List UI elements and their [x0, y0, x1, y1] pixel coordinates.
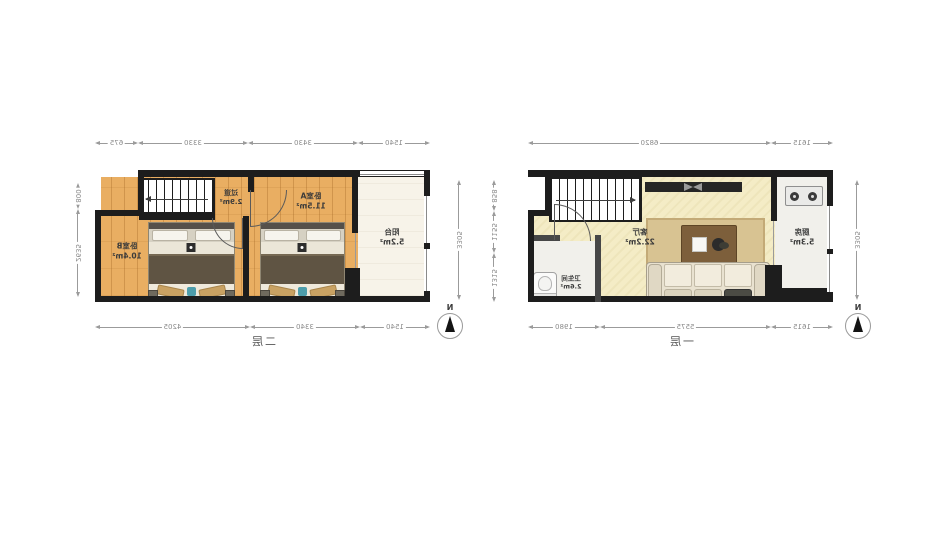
dim-top: 3430 — [248, 138, 358, 148]
plant-icon — [713, 238, 726, 251]
kitchen-sliding-door — [773, 221, 774, 265]
dim-left: 3305 — [851, 180, 863, 300]
stove-icon — [785, 186, 823, 206]
room-label-hallway: 过道 2.9m² — [220, 189, 243, 207]
room-area: 2.6m² — [560, 283, 581, 291]
room-label-bathroom: 卫生间 2.6m² — [560, 275, 581, 292]
door-leaf — [554, 204, 555, 240]
door-leaf — [242, 218, 243, 248]
wall — [528, 210, 534, 302]
wall — [140, 212, 215, 218]
bed-duvet — [261, 242, 344, 254]
compass-n-label: N — [447, 303, 454, 312]
wall — [771, 177, 777, 221]
bed-pillows — [261, 229, 344, 242]
balcony-door — [355, 233, 356, 268]
dim-top: 6820 — [528, 138, 771, 148]
window — [827, 206, 833, 249]
stair-direction-arrow — [556, 200, 635, 201]
dim-top: 3330 — [138, 138, 248, 148]
compass-dial — [437, 313, 463, 339]
dim-top: 1615 — [771, 138, 833, 148]
dim-right: 1155 — [488, 211, 500, 253]
sofa-armrest — [648, 264, 662, 300]
compass: N — [845, 303, 871, 339]
door-leaf — [250, 190, 251, 226]
compass-n-label: N — [855, 303, 862, 312]
bed-blanket — [261, 254, 344, 284]
dim-right: 858 — [488, 180, 500, 211]
compass-dial — [845, 313, 871, 339]
wall — [528, 170, 833, 177]
pillow — [264, 230, 299, 241]
bed-blanket — [149, 254, 234, 284]
wall-bathroom — [595, 235, 601, 302]
compass-needle-icon — [445, 316, 455, 332]
dim-top: 675 — [95, 138, 138, 148]
bed-runner — [187, 243, 196, 252]
room-name: 卧室B — [112, 241, 142, 251]
room-name: 卫生间 — [560, 275, 581, 283]
sofa-cushion — [694, 264, 722, 287]
tray-icon — [693, 237, 708, 252]
burner-icon — [809, 192, 818, 201]
room-name: 客厅 — [625, 227, 655, 237]
floor-title-first: 一层 — [668, 333, 694, 349]
dim-bottom: 1980 — [528, 322, 600, 332]
pillow — [152, 230, 188, 241]
wall — [248, 170, 254, 192]
room-area: 11.5m² — [296, 201, 326, 211]
stair-direction-arrow — [146, 199, 208, 200]
dim-bottom: 3340 — [250, 322, 360, 332]
dim-right: 800 — [72, 183, 84, 209]
dim-right: 1315 — [488, 253, 500, 302]
dim-bottom: 5575 — [600, 322, 771, 332]
compass: N — [437, 303, 463, 339]
floor-title-second: 二层 — [250, 333, 276, 349]
tv-console — [645, 182, 742, 192]
dim-bottom: 4205 — [95, 322, 250, 332]
room-label-balcony: 阳台 5.2m² — [380, 227, 404, 247]
dim-left: 3305 — [453, 180, 465, 300]
sofa-seats — [663, 263, 753, 288]
wall — [95, 210, 144, 216]
room-name: 厨房 — [790, 227, 814, 237]
compass-needle-icon — [853, 316, 863, 332]
wall — [243, 216, 249, 302]
bed-a — [260, 222, 345, 300]
burner-icon — [791, 192, 800, 201]
accent-cushion — [187, 287, 196, 296]
room-label-living: 客厅 22.2m² — [625, 227, 655, 247]
room-area: 10.4m² — [112, 251, 142, 261]
wall — [765, 265, 782, 302]
window — [827, 254, 833, 292]
coffee-table — [681, 225, 737, 264]
room-area: 5.3m² — [790, 237, 814, 247]
sofa-cushion — [724, 264, 752, 287]
floor-plan-canvas: 客厅 22.2m² 厨房 5.3m² 卫生间 2.6m² 1615 6820 1… — [0, 0, 933, 551]
bed-runner — [298, 243, 307, 252]
tv-icon — [694, 183, 703, 191]
room-name: 卧室A — [296, 191, 326, 201]
toilet-bowl — [538, 276, 552, 291]
window — [424, 249, 430, 291]
tv-icon — [685, 183, 694, 191]
window — [360, 171, 424, 176]
window — [424, 196, 430, 243]
wall — [352, 177, 358, 233]
wall — [345, 268, 360, 296]
room-label-bedroom-b: 卧室B 10.4m² — [112, 241, 142, 261]
sofa-cushion — [664, 264, 692, 287]
room-name: 阳台 — [380, 227, 404, 237]
accent-cushion — [298, 287, 307, 296]
room-area: 2.9m² — [220, 198, 243, 207]
dim-bottom: 1615 — [771, 322, 833, 332]
room-label-kitchen: 厨房 5.3m² — [790, 227, 814, 247]
pillow — [306, 230, 341, 241]
room-area: 5.2m² — [380, 237, 404, 247]
room-label-bedroom-a: 卧室A 11.5m² — [296, 191, 326, 211]
bed-duvet — [149, 242, 234, 254]
dim-bottom: 1540 — [360, 322, 430, 332]
wall — [95, 296, 430, 302]
dim-right: 2635 — [72, 209, 84, 297]
wall — [528, 296, 833, 302]
dim-top: 1540 — [358, 138, 430, 148]
wall — [95, 210, 101, 302]
room-area: 22.2m² — [625, 237, 655, 247]
room-name: 过道 — [220, 189, 243, 198]
